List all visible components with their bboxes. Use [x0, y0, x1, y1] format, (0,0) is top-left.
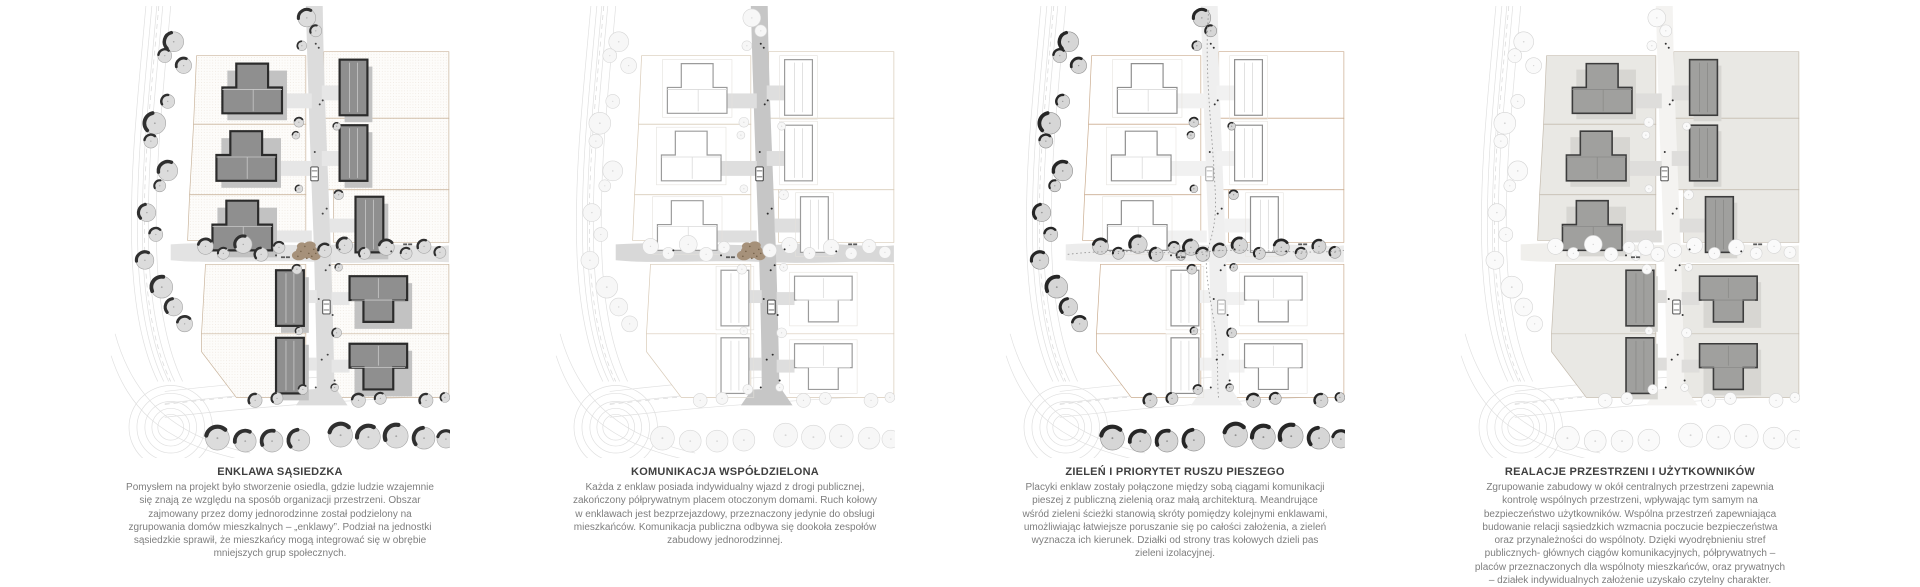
panel-zielen-priorytet-pieszych: ZIELEŃ I PRIORYTET RUSZU PIESZEGO Placyk… — [1005, 6, 1345, 561]
site-plan-komunikacja-wspoldzielona — [555, 6, 895, 458]
caption-komunikacja-wspoldzielona: KOMUNIKACJA WSPÓŁDZIELONA Każda z enklaw… — [555, 466, 895, 547]
panel-komunikacja-wspoldzielona: KOMUNIKACJA WSPÓŁDZIELONA Każda z enklaw… — [555, 6, 895, 547]
site-plan-enklawa-sasiedzka — [110, 6, 450, 458]
panel-description: Każda z enklaw posiada indywidualny wjaz… — [569, 481, 881, 547]
panel-description: Zgrupowanie zabudowy w okół centralnych … — [1474, 481, 1786, 587]
panel-relacje-przestrzeni: REALACJE PRZESTRZENI I UŻYTKOWNIKÓW Zgru… — [1460, 6, 1800, 587]
panel-title: ENKLAWA SĄSIEDZKA — [110, 466, 450, 478]
site-plan-relacje-przestrzeni — [1460, 6, 1800, 458]
panel-title: ZIELEŃ I PRIORYTET RUSZU PIESZEGO — [1005, 466, 1345, 478]
caption-relacje-przestrzeni: REALACJE PRZESTRZENI I UŻYTKOWNIKÓW Zgru… — [1460, 466, 1800, 587]
presentation-board: ENKLAWA SĄSIEDZKA Pomysłem na projekt by… — [0, 0, 1920, 583]
caption-zielen-priorytet-pieszych: ZIELEŃ I PRIORYTET RUSZU PIESZEGO Placyk… — [1005, 466, 1345, 561]
site-plan-zielen-priorytet-pieszych — [1005, 6, 1345, 458]
panel-title: KOMUNIKACJA WSPÓŁDZIELONA — [555, 466, 895, 478]
panel-description: Pomysłem na projekt było stworzenie osie… — [124, 481, 436, 561]
panel-enklawa-sasiedzka: ENKLAWA SĄSIEDZKA Pomysłem na projekt by… — [110, 6, 450, 561]
caption-enklawa-sasiedzka: ENKLAWA SĄSIEDZKA Pomysłem na projekt by… — [110, 466, 450, 561]
panel-title: REALACJE PRZESTRZENI I UŻYTKOWNIKÓW — [1460, 466, 1800, 478]
panel-description: Placyki enklaw zostały połączone między … — [1019, 481, 1331, 561]
